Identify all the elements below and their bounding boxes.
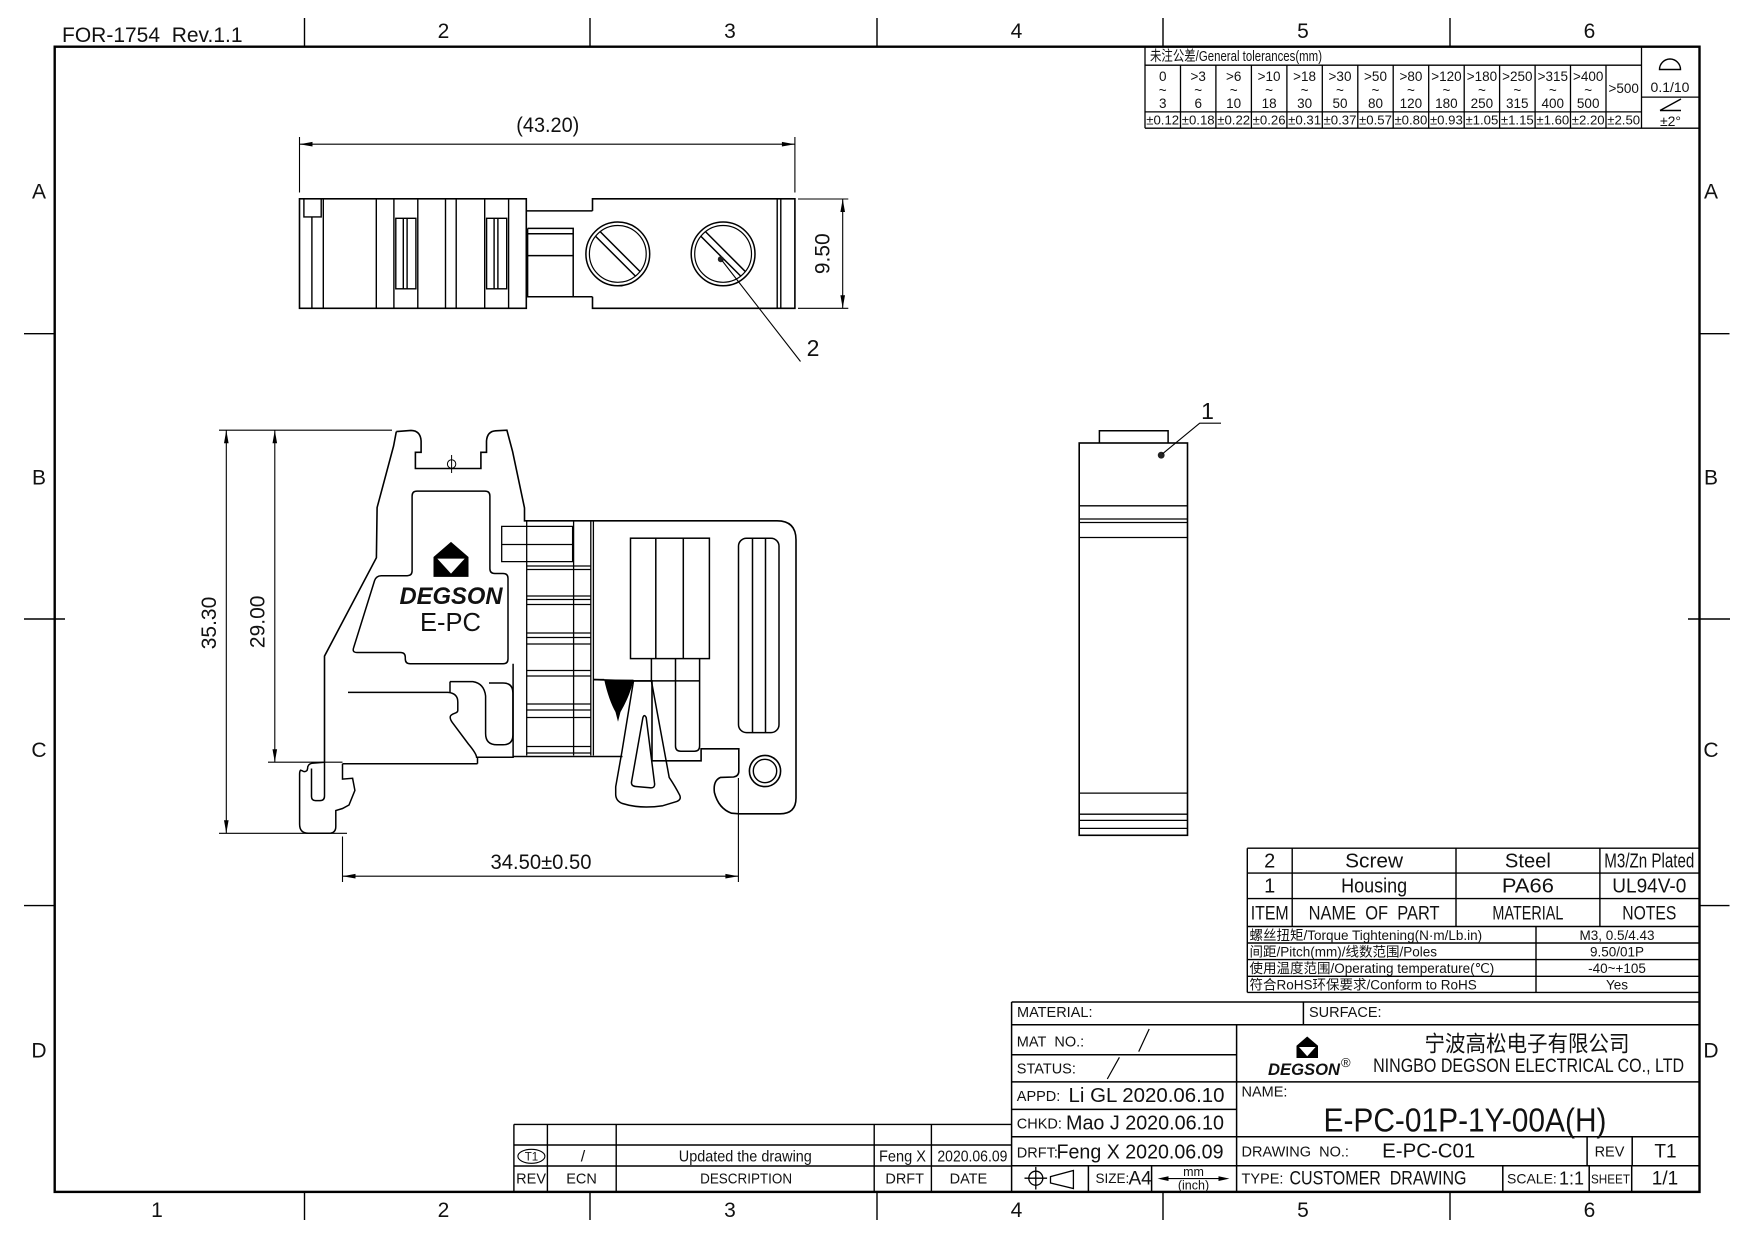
svg-text:2: 2 bbox=[807, 335, 820, 361]
svg-text:NINGBO DEGSON ELECTRICAL CO.,: NINGBO DEGSON ELECTRICAL CO., LTD bbox=[1373, 1055, 1684, 1077]
svg-text:>18: >18 bbox=[1293, 69, 1316, 84]
svg-text:MATERIAL: MATERIAL bbox=[1492, 904, 1563, 925]
svg-text:M3/Zn Plated: M3/Zn Plated bbox=[1604, 851, 1694, 873]
svg-text:±0.37: ±0.37 bbox=[1324, 113, 1357, 128]
svg-text:mm: mm bbox=[1183, 1165, 1204, 1179]
svg-text:(inch): (inch) bbox=[1178, 1179, 1209, 1193]
svg-text:Screw: Screw bbox=[1345, 851, 1404, 873]
svg-text:T1: T1 bbox=[1654, 1142, 1676, 1163]
svg-text:C: C bbox=[31, 739, 46, 762]
svg-text:Mao J 2020.06.10: Mao J 2020.06.10 bbox=[1066, 1112, 1224, 1135]
svg-text:250: 250 bbox=[1471, 96, 1494, 111]
svg-text:Feng X 2020.06.09: Feng X 2020.06.09 bbox=[1057, 1141, 1224, 1164]
svg-text:Steel: Steel bbox=[1505, 851, 1551, 873]
svg-text:2: 2 bbox=[438, 1199, 450, 1222]
svg-text:400: 400 bbox=[1542, 96, 1565, 111]
svg-text:NAME:: NAME: bbox=[1242, 1085, 1288, 1101]
svg-text:>315: >315 bbox=[1538, 69, 1568, 84]
svg-text:±1.15: ±1.15 bbox=[1501, 113, 1534, 128]
svg-text:315: 315 bbox=[1506, 96, 1529, 111]
svg-text:1: 1 bbox=[1264, 876, 1275, 898]
svg-text:±0.93: ±0.93 bbox=[1430, 113, 1463, 128]
svg-text:A: A bbox=[1704, 181, 1718, 204]
svg-text:1:1: 1:1 bbox=[1559, 1169, 1584, 1189]
svg-text:>250: >250 bbox=[1502, 69, 1532, 84]
svg-text:>30: >30 bbox=[1329, 69, 1352, 84]
svg-text:SHEET: SHEET bbox=[1591, 1172, 1630, 1187]
svg-text:REV: REV bbox=[1595, 1145, 1625, 1161]
svg-text:±0.22: ±0.22 bbox=[1217, 113, 1250, 128]
svg-text:TYPE:: TYPE: bbox=[1242, 1172, 1284, 1188]
svg-text:80: 80 bbox=[1368, 96, 1383, 111]
svg-text:NAME OF PART: NAME OF PART bbox=[1309, 904, 1440, 925]
svg-text:>50: >50 bbox=[1364, 69, 1387, 84]
svg-text:DRFT: DRFT bbox=[885, 1172, 924, 1188]
svg-text:2020.06.09: 2020.06.09 bbox=[937, 1149, 1007, 1166]
svg-text:B: B bbox=[1704, 467, 1718, 490]
svg-text:螺丝扭矩/Torque Tightening(N·m/Lb.: 螺丝扭矩/Torque Tightening(N·m/Lb.in) bbox=[1250, 928, 1483, 943]
svg-text:±0.57: ±0.57 bbox=[1359, 113, 1392, 128]
svg-text:3: 3 bbox=[1159, 96, 1167, 111]
svg-text:/: / bbox=[581, 1149, 586, 1166]
svg-text:C: C bbox=[1703, 739, 1718, 762]
svg-text:2: 2 bbox=[438, 20, 450, 43]
svg-text:±2.20: ±2.20 bbox=[1572, 113, 1605, 128]
svg-text:0.1/10: 0.1/10 bbox=[1651, 79, 1690, 95]
svg-text:UL94V-0: UL94V-0 bbox=[1612, 876, 1686, 898]
svg-text:ECN: ECN bbox=[566, 1172, 597, 1188]
svg-text:E-PC-01P-1Y-00A(H): E-PC-01P-1Y-00A(H) bbox=[1324, 1102, 1607, 1139]
svg-text:±2°: ±2° bbox=[1660, 113, 1681, 129]
svg-text:符合RoHS环保要求/Conform to RoHS: 符合RoHS环保要求/Conform to RoHS bbox=[1250, 977, 1477, 992]
svg-text:>400: >400 bbox=[1573, 69, 1603, 84]
svg-text:>3: >3 bbox=[1190, 69, 1205, 84]
svg-text:E-PC: E-PC bbox=[420, 607, 481, 637]
svg-text:ITEM: ITEM bbox=[1251, 904, 1289, 925]
svg-text:SURFACE:: SURFACE: bbox=[1309, 1005, 1382, 1021]
svg-text:(43.20): (43.20) bbox=[516, 114, 579, 137]
svg-text:M3, 0.5/4.43: M3, 0.5/4.43 bbox=[1579, 928, 1654, 943]
svg-text:Yes: Yes bbox=[1606, 977, 1628, 992]
svg-text:35.30: 35.30 bbox=[198, 597, 221, 650]
svg-text:间距/Pitch(mm)/线数范围/Poles: 间距/Pitch(mm)/线数范围/Poles bbox=[1250, 944, 1438, 959]
svg-text:30: 30 bbox=[1297, 96, 1312, 111]
svg-text:DRAWING NO.:: DRAWING NO.: bbox=[1242, 1145, 1349, 1161]
svg-text:DRFT:: DRFT: bbox=[1017, 1146, 1058, 1162]
svg-text:500: 500 bbox=[1577, 96, 1600, 111]
svg-text:±0.12: ±0.12 bbox=[1146, 113, 1179, 128]
svg-text:A4: A4 bbox=[1129, 1169, 1153, 1190]
svg-text:6: 6 bbox=[1584, 20, 1596, 43]
svg-text:CHKD:: CHKD: bbox=[1017, 1117, 1062, 1133]
svg-text:±0.31: ±0.31 bbox=[1288, 113, 1321, 128]
svg-text:DEGSON: DEGSON bbox=[400, 583, 504, 610]
svg-text:A: A bbox=[32, 181, 46, 204]
svg-text:CUSTOMER DRAWING: CUSTOMER DRAWING bbox=[1290, 1169, 1467, 1190]
svg-text:±1.05: ±1.05 bbox=[1465, 113, 1498, 128]
svg-text:0: 0 bbox=[1159, 69, 1167, 84]
svg-text:>6: >6 bbox=[1226, 69, 1241, 84]
svg-text:±0.18: ±0.18 bbox=[1182, 113, 1215, 128]
svg-text:50: 50 bbox=[1332, 96, 1347, 111]
svg-text:±0.26: ±0.26 bbox=[1253, 113, 1286, 128]
svg-text:E-PC-C01: E-PC-C01 bbox=[1382, 1141, 1475, 1163]
svg-text:DATE: DATE bbox=[950, 1172, 988, 1188]
svg-text:34.50±0.50: 34.50±0.50 bbox=[491, 851, 592, 874]
svg-text:±2.50: ±2.50 bbox=[1607, 113, 1640, 128]
svg-text:MATERIAL:: MATERIAL: bbox=[1017, 1005, 1092, 1021]
svg-text:180: 180 bbox=[1435, 96, 1458, 111]
svg-text:T1: T1 bbox=[525, 1151, 538, 1163]
svg-text:4: 4 bbox=[1011, 20, 1023, 43]
svg-text:18: 18 bbox=[1262, 96, 1277, 111]
svg-text:Updated the drawing: Updated the drawing bbox=[679, 1149, 812, 1166]
svg-text:使用温度范围/Operating temperature(℃: 使用温度范围/Operating temperature(℃) bbox=[1250, 960, 1495, 976]
svg-text:FOR-1754 Rev.1.1: FOR-1754 Rev.1.1 bbox=[62, 24, 243, 47]
svg-text:®: ® bbox=[1341, 1055, 1351, 1070]
svg-text:5: 5 bbox=[1297, 20, 1309, 43]
svg-text:宁波高松电子有限公司: 宁波高松电子有限公司 bbox=[1425, 1032, 1630, 1057]
svg-text:Li GL 2020.06.10: Li GL 2020.06.10 bbox=[1069, 1084, 1225, 1107]
svg-text:3: 3 bbox=[724, 20, 736, 43]
svg-text:D: D bbox=[1703, 1040, 1718, 1063]
svg-text:>10: >10 bbox=[1258, 69, 1281, 84]
svg-text:1: 1 bbox=[151, 1199, 163, 1222]
svg-text:1/1: 1/1 bbox=[1652, 1169, 1678, 1190]
svg-text:3: 3 bbox=[724, 1199, 736, 1222]
svg-text:STATUS:: STATUS: bbox=[1017, 1062, 1076, 1078]
svg-text:Housing: Housing bbox=[1341, 876, 1407, 898]
svg-text:DEGSON: DEGSON bbox=[1268, 1061, 1341, 1079]
svg-text:>180: >180 bbox=[1467, 69, 1497, 84]
svg-text:REV: REV bbox=[516, 1172, 546, 1188]
svg-text:>120: >120 bbox=[1431, 69, 1461, 84]
svg-text:NOTES: NOTES bbox=[1622, 904, 1676, 925]
svg-text:>500: >500 bbox=[1608, 81, 1638, 96]
svg-text:5: 5 bbox=[1297, 1199, 1309, 1222]
svg-text:9.50: 9.50 bbox=[812, 233, 835, 274]
svg-text:D: D bbox=[31, 1040, 46, 1063]
svg-text:±0.80: ±0.80 bbox=[1394, 113, 1427, 128]
svg-text:SCALE:: SCALE: bbox=[1507, 1171, 1557, 1187]
svg-text:10: 10 bbox=[1226, 96, 1241, 111]
svg-text:PA66: PA66 bbox=[1502, 876, 1554, 898]
svg-text:6: 6 bbox=[1194, 96, 1202, 111]
svg-text:-40~+105: -40~+105 bbox=[1588, 961, 1646, 976]
svg-text:1: 1 bbox=[1201, 398, 1214, 424]
svg-text:未注公差/General tolerances(mm): 未注公差/General tolerances(mm) bbox=[1150, 48, 1322, 65]
svg-text:±1.60: ±1.60 bbox=[1536, 113, 1569, 128]
svg-text:SIZE:: SIZE: bbox=[1096, 1171, 1130, 1186]
svg-text:2: 2 bbox=[1264, 851, 1275, 873]
svg-text:9.50/01P: 9.50/01P bbox=[1590, 944, 1644, 959]
svg-text:6: 6 bbox=[1584, 1199, 1596, 1222]
svg-text:APPD:: APPD: bbox=[1017, 1089, 1061, 1105]
svg-text:MAT NO.:: MAT NO.: bbox=[1017, 1035, 1084, 1051]
svg-text:4: 4 bbox=[1011, 1199, 1023, 1222]
svg-text:29.00: 29.00 bbox=[247, 596, 270, 649]
svg-text:120: 120 bbox=[1400, 96, 1423, 111]
svg-text:B: B bbox=[32, 467, 46, 490]
svg-text:DESCRIPTION: DESCRIPTION bbox=[700, 1172, 792, 1188]
svg-text:Feng X: Feng X bbox=[879, 1149, 926, 1166]
svg-text:>80: >80 bbox=[1399, 69, 1422, 84]
